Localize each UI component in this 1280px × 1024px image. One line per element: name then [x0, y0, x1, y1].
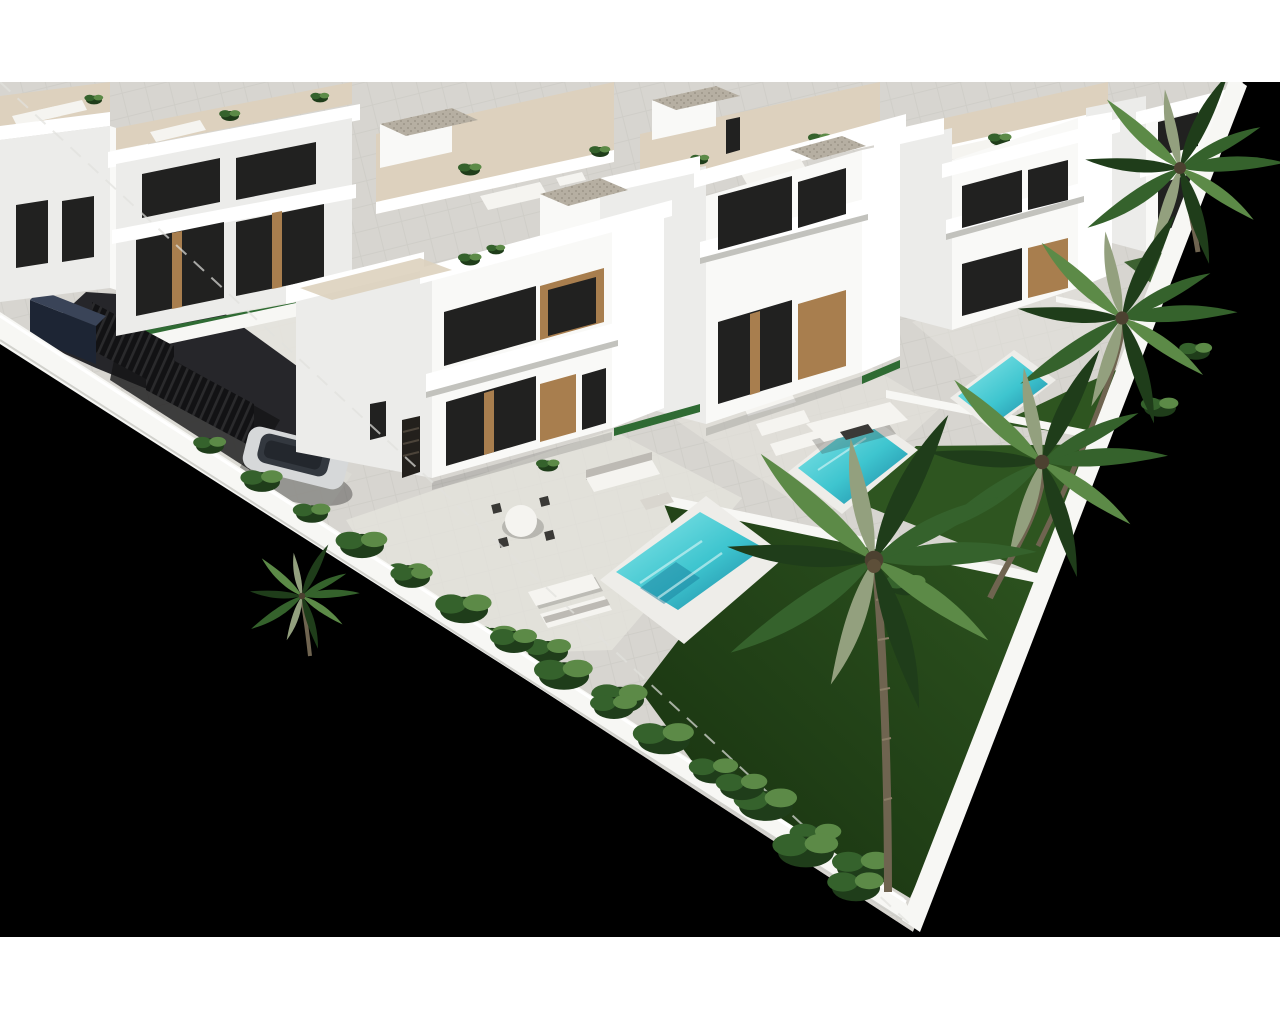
end-column — [862, 142, 900, 372]
door-frame — [750, 311, 760, 395]
door-frame — [272, 211, 282, 289]
glass-doors — [582, 368, 606, 430]
door-panel — [540, 374, 576, 442]
window — [62, 196, 94, 262]
end-column — [612, 204, 664, 428]
real-estate-render-image — [0, 0, 1280, 1024]
door-frame — [484, 390, 494, 455]
render-canvas — [0, 0, 1280, 1024]
window — [16, 200, 48, 268]
roof-door — [726, 117, 740, 154]
door-panel — [798, 290, 846, 380]
door-frame — [172, 231, 182, 309]
coconut-cluster — [867, 559, 881, 573]
side-window — [370, 401, 386, 440]
dining-table — [505, 505, 537, 537]
side-door — [402, 416, 420, 478]
